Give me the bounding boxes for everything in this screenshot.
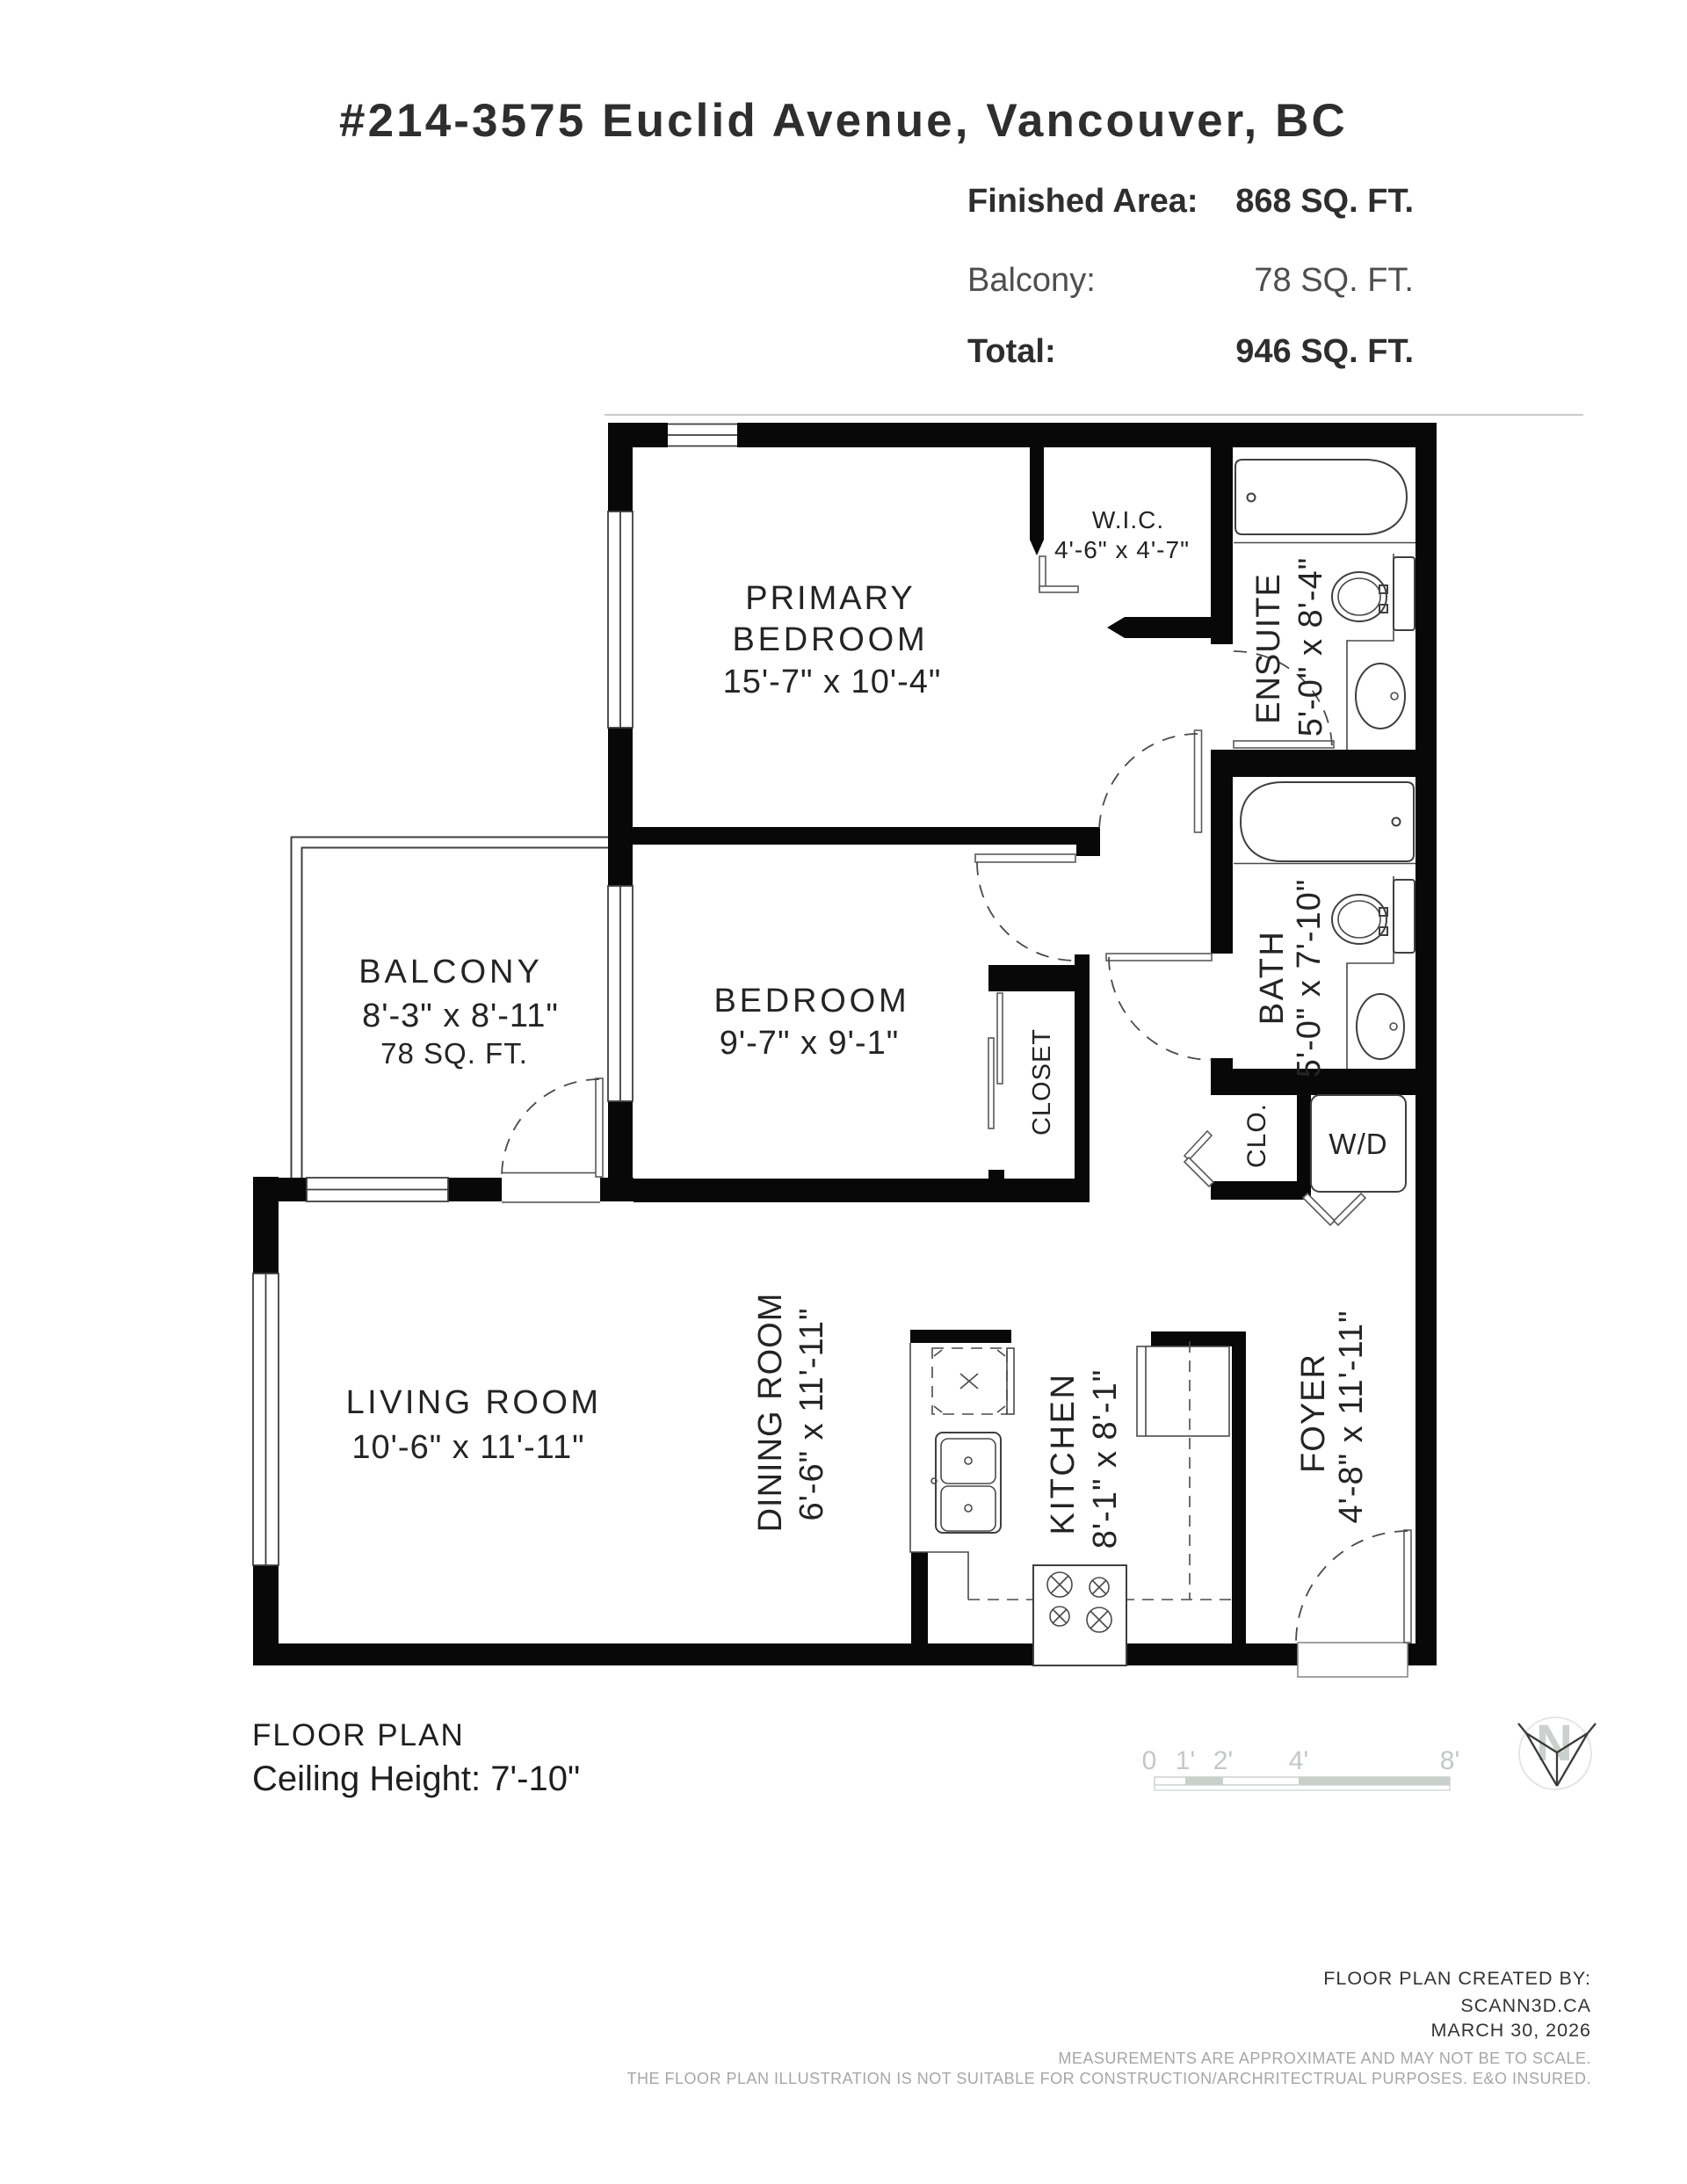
svg-text:Finished Area:: Finished Area: [967, 183, 1198, 220]
svg-text:10'-6" x 11'-11": 10'-6" x 11'-11" [351, 1429, 584, 1466]
svg-text:BEDROOM: BEDROOM [733, 621, 929, 658]
svg-text:6'-6" x 11'-11": 6'-6" x 11'-11" [793, 1307, 830, 1520]
svg-text:8'-3" x 8'-11": 8'-3" x 8'-11" [362, 998, 559, 1034]
svg-text:MEASUREMENTS ARE APPROXIMATE A: MEASUREMENTS ARE APPROXIMATE AND MAY NOT… [1058, 2050, 1591, 2067]
svg-text:5'-0" x 8'-4": 5'-0" x 8'-4" [1292, 557, 1329, 736]
svg-text:KITCHEN: KITCHEN [1045, 1373, 1082, 1535]
svg-text:868 SQ. FT.: 868 SQ. FT. [1235, 183, 1414, 220]
svg-text:SCANN3D.CA: SCANN3D.CA [1460, 1995, 1591, 2016]
svg-text:W.I.C.: W.I.C. [1092, 506, 1164, 533]
svg-text:Ceiling Height: 7'-10": Ceiling Height: 7'-10" [252, 1760, 580, 1798]
svg-text:9'-7" x 9'-1": 9'-7" x 9'-1" [720, 1025, 899, 1062]
svg-text:ENSUITE: ENSUITE [1250, 573, 1287, 724]
svg-text:CLO.: CLO. [1242, 1103, 1271, 1168]
svg-text:4'-8" x 11'-11": 4'-8" x 11'-11" [1333, 1310, 1370, 1523]
svg-text:FLOOR PLAN CREATED BY:: FLOOR PLAN CREATED BY: [1323, 1968, 1591, 1989]
svg-text:78 SQ. FT.: 78 SQ. FT. [380, 1037, 528, 1070]
svg-text:5'-0" x 7'-10": 5'-0" x 7'-10" [1291, 879, 1328, 1078]
svg-text:15'-7" x 10'-4": 15'-7" x 10'-4" [723, 664, 942, 700]
svg-text:Balcony:: Balcony: [967, 262, 1096, 299]
svg-text:DINING ROOM: DINING ROOM [752, 1293, 789, 1533]
svg-text:FOYER: FOYER [1295, 1353, 1332, 1473]
svg-text:MARCH 30, 2026: MARCH 30, 2026 [1431, 2020, 1592, 2041]
svg-text:CLOSET: CLOSET [1028, 1028, 1056, 1136]
svg-text:#214-3575 Euclid Avenue, Vanco: #214-3575 Euclid Avenue, Vancouver, BC [339, 95, 1348, 147]
svg-text:BATH: BATH [1254, 930, 1291, 1026]
svg-text:8'-1" x 8'-1": 8'-1" x 8'-1" [1087, 1369, 1124, 1549]
svg-text:LIVING ROOM: LIVING ROOM [346, 1384, 602, 1421]
svg-text:1': 1' [1176, 1746, 1195, 1775]
svg-text:946 SQ. FT.: 946 SQ. FT. [1235, 333, 1414, 370]
svg-text:THE FLOOR PLAN ILLUSTRATION IS: THE FLOOR PLAN ILLUSTRATION IS NOT SUITA… [627, 2070, 1591, 2087]
svg-text:8': 8' [1440, 1746, 1459, 1775]
svg-text:Total:: Total: [967, 333, 1056, 370]
svg-text:W/D: W/D [1329, 1128, 1387, 1160]
svg-text:4'-6" x 4'-7": 4'-6" x 4'-7" [1054, 536, 1190, 563]
svg-text:BALCONY: BALCONY [358, 954, 543, 990]
svg-text:FLOOR PLAN: FLOOR PLAN [252, 1718, 465, 1752]
svg-text:2': 2' [1213, 1746, 1233, 1775]
svg-text:4': 4' [1289, 1746, 1308, 1775]
svg-text:PRIMARY: PRIMARY [745, 580, 915, 617]
svg-text:BEDROOM: BEDROOM [714, 983, 910, 1019]
svg-text:0: 0 [1142, 1746, 1157, 1775]
svg-text:78 SQ. FT.: 78 SQ. FT. [1254, 262, 1414, 299]
